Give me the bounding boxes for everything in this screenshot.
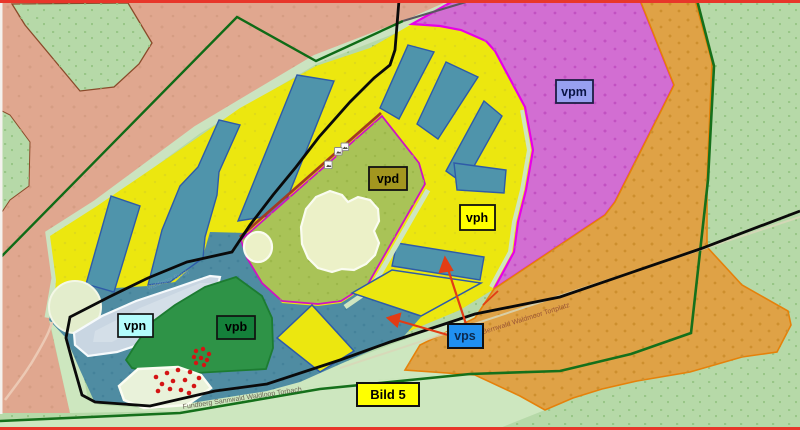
svg-text:vph: vph [466,211,488,225]
svg-text:vpb: vpb [225,320,248,334]
svg-text:Bild 5: Bild 5 [370,387,405,402]
svg-text:vpd: vpd [377,172,399,186]
svg-text:vpn: vpn [124,319,146,333]
svg-text:vps: vps [454,329,476,343]
svg-text:vpm: vpm [561,85,587,99]
